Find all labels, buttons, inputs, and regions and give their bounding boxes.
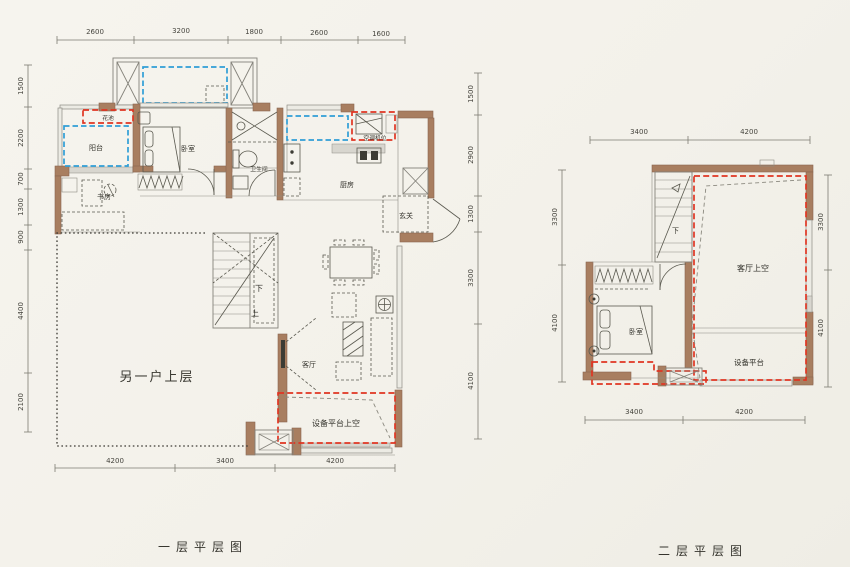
floor1-plan: 2600 3200 1800 2600 1600 1500 2200 700 1… xyxy=(17,27,482,554)
balcony-label: 阳台 xyxy=(89,143,103,152)
foyer-label: 玄关 xyxy=(399,211,413,220)
dim-label: 900 xyxy=(17,230,25,243)
bedroom2-label: 卧室 xyxy=(629,327,643,336)
dim-label: 3400 xyxy=(625,408,643,416)
dim-label: 3300 xyxy=(551,208,559,226)
dim-label: 3300 xyxy=(467,269,475,287)
dim-label: 3300 xyxy=(817,213,825,231)
dim-label: 1500 xyxy=(17,77,25,95)
stair-down-label: 下 xyxy=(255,284,263,293)
dim-label: 4100 xyxy=(551,314,559,332)
living-void-label: 客厅上空 xyxy=(737,263,769,273)
floorplan-sheet: 2600 3200 1800 2600 1600 1500 2200 700 1… xyxy=(0,0,850,567)
equipment-platform-label: 设备平台 xyxy=(734,357,764,367)
dim-label: 1300 xyxy=(17,198,25,216)
floor2-zones xyxy=(592,176,806,384)
living-room-label: 客厅 xyxy=(302,360,316,369)
dim-label: 2900 xyxy=(467,146,475,164)
dim-label: 2600 xyxy=(310,29,328,37)
dim-label: 2200 xyxy=(17,129,25,147)
other-unit-boundary xyxy=(57,233,248,446)
equipment-void-label: 设备平台上空 xyxy=(312,418,360,428)
floorplan-drawing: 2600 3200 1800 2600 1600 1500 2200 700 1… xyxy=(0,0,850,567)
dim-label: 1800 xyxy=(245,28,263,36)
dim-label: 2600 xyxy=(86,28,104,36)
floor2-room-labels: 客厅上空 卧室 设备平台 xyxy=(629,263,769,367)
floor1-dimensions: 2600 3200 1800 2600 1600 1500 2200 700 1… xyxy=(17,27,482,472)
dim-label: 3400 xyxy=(216,457,234,465)
ac-unit-label: 空调机位 xyxy=(363,134,386,142)
dim-label: 4200 xyxy=(740,128,758,136)
floor1-title: 一层平层图 xyxy=(158,540,248,554)
stair-up-label: 上 xyxy=(251,309,259,318)
floor1-partitions xyxy=(61,110,428,455)
bedroom-label: 卧室 xyxy=(181,144,195,153)
dim-label: 4100 xyxy=(817,319,825,337)
dim-label: 4200 xyxy=(106,457,124,465)
dim-label: 2100 xyxy=(17,393,25,411)
dim-label: 1300 xyxy=(467,205,475,223)
coffee-table xyxy=(343,322,363,356)
bathroom-label: 卫生间 xyxy=(250,165,268,173)
kitchen-label: 厨房 xyxy=(340,180,354,189)
living-void-zone xyxy=(694,176,806,380)
dim-label: 4200 xyxy=(326,457,344,465)
dim-label: 1600 xyxy=(372,30,390,38)
dim-label: 3400 xyxy=(630,128,648,136)
dim-label: 3200 xyxy=(172,27,190,35)
bay-window-zone xyxy=(143,67,227,103)
stair-down-label: 下 xyxy=(672,227,679,235)
study-label: 书房 xyxy=(97,192,111,201)
other-unit-label: 另一户上层 xyxy=(119,369,194,385)
dim-label: 700 xyxy=(17,172,25,185)
floor1-stairs: 下 上 xyxy=(213,233,278,328)
dim-label: 4100 xyxy=(467,372,475,390)
dim-label: 4400 xyxy=(17,302,25,320)
floor2-title: 二层平层图 xyxy=(658,544,748,558)
kitchen-window-zone xyxy=(287,116,348,140)
flower-bed-label: 花池 xyxy=(102,114,114,122)
floor2-walls xyxy=(583,165,813,386)
dim-label: 4200 xyxy=(735,408,753,416)
floor1-bay-window-block xyxy=(113,58,257,108)
dim-label: 1500 xyxy=(467,85,475,103)
floor2-plan: 3400 4200 3300 4100 3300 4100 3400 4200 xyxy=(551,128,832,558)
